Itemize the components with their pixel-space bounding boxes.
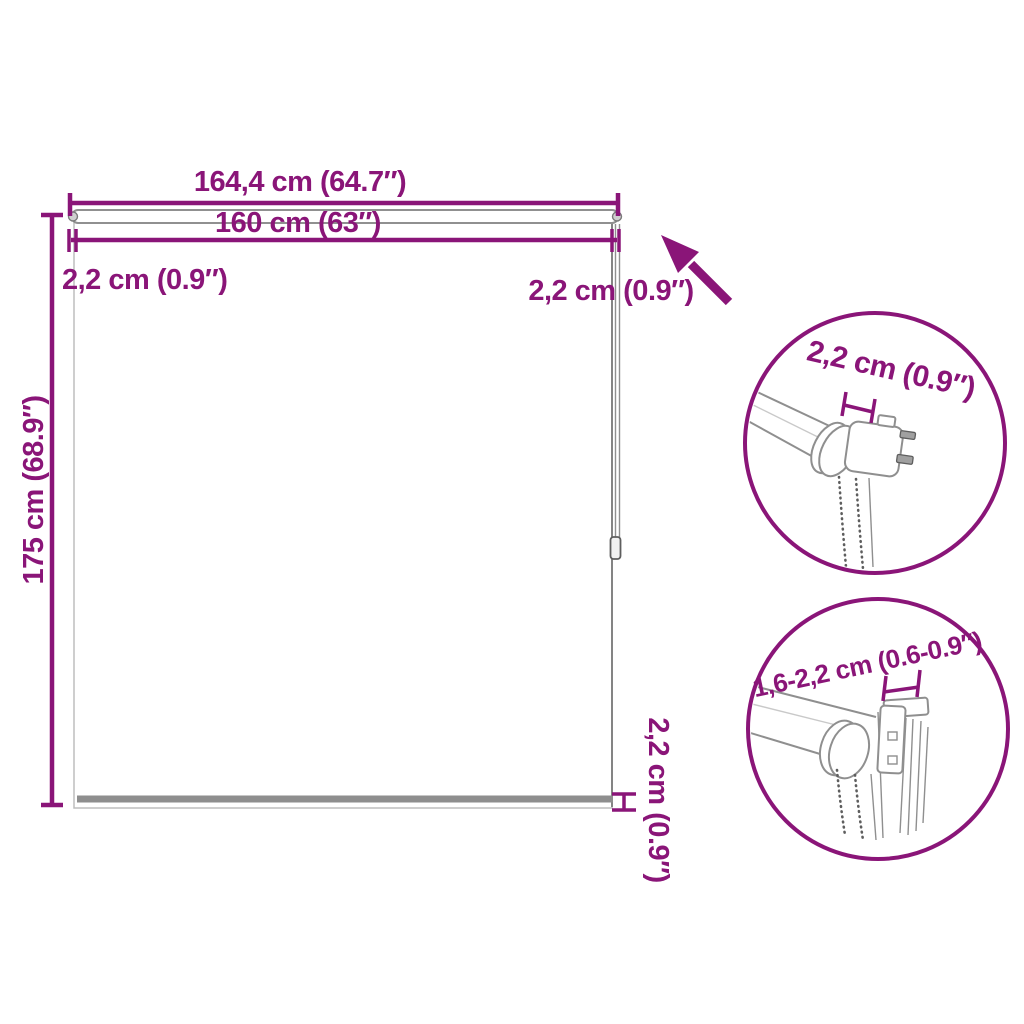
left-offset-label: 2,2 cm (0.9″) (62, 264, 227, 296)
detail-callout-bottom: 1,6-2,2 cm (0.6-0.9″) (732, 599, 1008, 859)
product-dimension-diagram: 164,4 cm (64.7″) 160 cm (63″) 2,2 cm (0.… (0, 0, 1024, 1024)
fabric-width-label: 160 cm (63″) (215, 207, 381, 239)
mounting-bracket (844, 420, 904, 477)
bottom-bar-label: 2,2 cm (0.9″) (642, 717, 674, 882)
total-width-label: 164,4 cm (64.7″) (194, 166, 406, 198)
total-height-label: 175 cm (68.9″) (18, 395, 50, 584)
chain-connector (611, 537, 621, 559)
detail-callout-top: 2,2 cm (0.9″) (726, 313, 1005, 573)
dimension-total-height: 175 cm (68.9″) (18, 215, 63, 805)
bottom-rail (77, 796, 613, 803)
right-offset-label: 2,2 cm (0.9″) (528, 275, 693, 307)
dimension-bottom-bar: 2,2 cm (0.9″) (612, 717, 674, 882)
diagram-canvas: 164,4 cm (64.7″) 160 cm (63″) 2,2 cm (0.… (0, 0, 1024, 1024)
